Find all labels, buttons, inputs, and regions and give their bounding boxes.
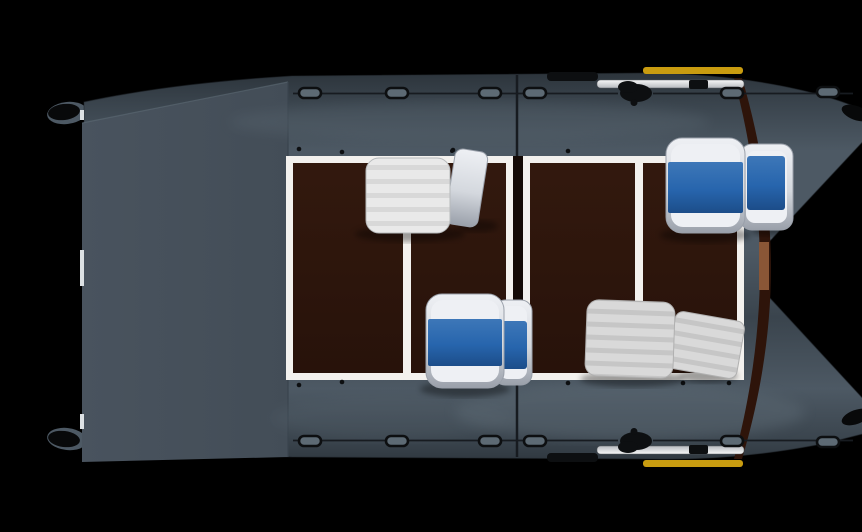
- deck-screw: [727, 381, 732, 386]
- seat-backrest: [667, 310, 746, 379]
- boat: [46, 67, 862, 467]
- seat-cushion: [366, 158, 450, 233]
- seat-helm-port: [426, 294, 532, 388]
- stern-strip: [80, 414, 84, 429]
- cushion-blue-pad: [428, 319, 502, 366]
- cushion-blue-pad: [668, 162, 743, 213]
- tube-highlight-bottom2: [270, 396, 510, 440]
- transom-wood-patch: [759, 242, 769, 290]
- seat-bow-bench: [366, 148, 489, 233]
- seat-bolt: [450, 149, 454, 153]
- seat-cushion: [585, 299, 676, 378]
- stern-strip: [80, 250, 84, 286]
- boat-product-image: [40, 16, 862, 516]
- tube-highlight-top: [230, 102, 710, 142]
- stern-panel: [82, 82, 288, 462]
- cushion-blue-pad: [747, 156, 785, 210]
- boat-render: [40, 16, 862, 516]
- seat-helm-starboard: [666, 138, 793, 233]
- stern-strip: [80, 110, 84, 120]
